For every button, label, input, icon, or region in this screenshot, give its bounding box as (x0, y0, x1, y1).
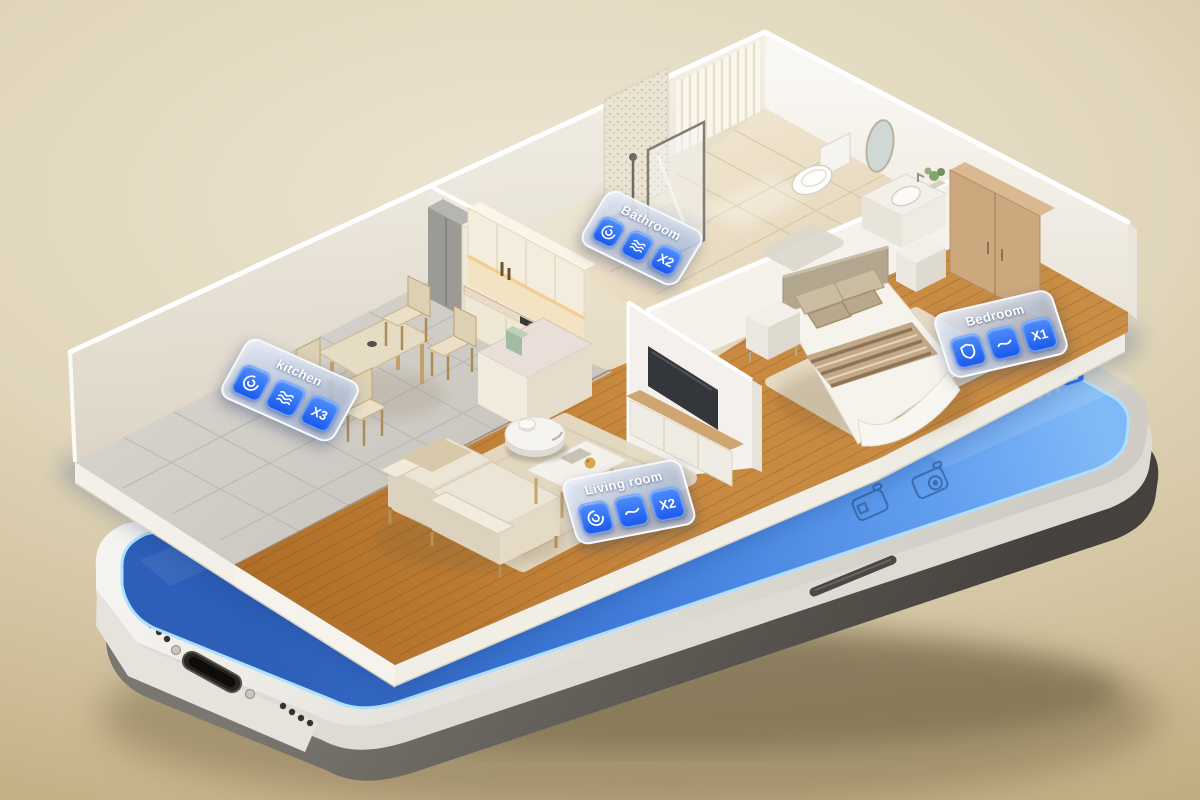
curve-mode-button[interactable] (984, 324, 1024, 361)
count-badge[interactable]: X3 (298, 393, 342, 434)
shield-mode-button[interactable] (948, 332, 988, 369)
curve-icon (620, 500, 644, 522)
scene-3d (0, 0, 1200, 800)
scene: kitchen X3 Bathroom X2 Bedroom X1 Living… (0, 0, 1200, 800)
count-badge[interactable]: X2 (647, 242, 685, 277)
cyclone-mode-button[interactable] (576, 500, 615, 537)
curve-icon (992, 332, 1016, 354)
shield-icon (956, 340, 980, 362)
count-badge[interactable]: X1 (1020, 316, 1060, 353)
robot-vacuum (505, 417, 568, 462)
count-badge[interactable]: X2 (648, 486, 687, 523)
cyclone-icon (596, 221, 620, 243)
waves-mode-button[interactable] (263, 378, 307, 419)
waves-icon (272, 386, 299, 410)
cyclone-icon (238, 371, 265, 395)
cyclone-icon (584, 507, 608, 529)
curve-mode-button[interactable] (612, 493, 651, 530)
waves-icon (625, 235, 649, 257)
